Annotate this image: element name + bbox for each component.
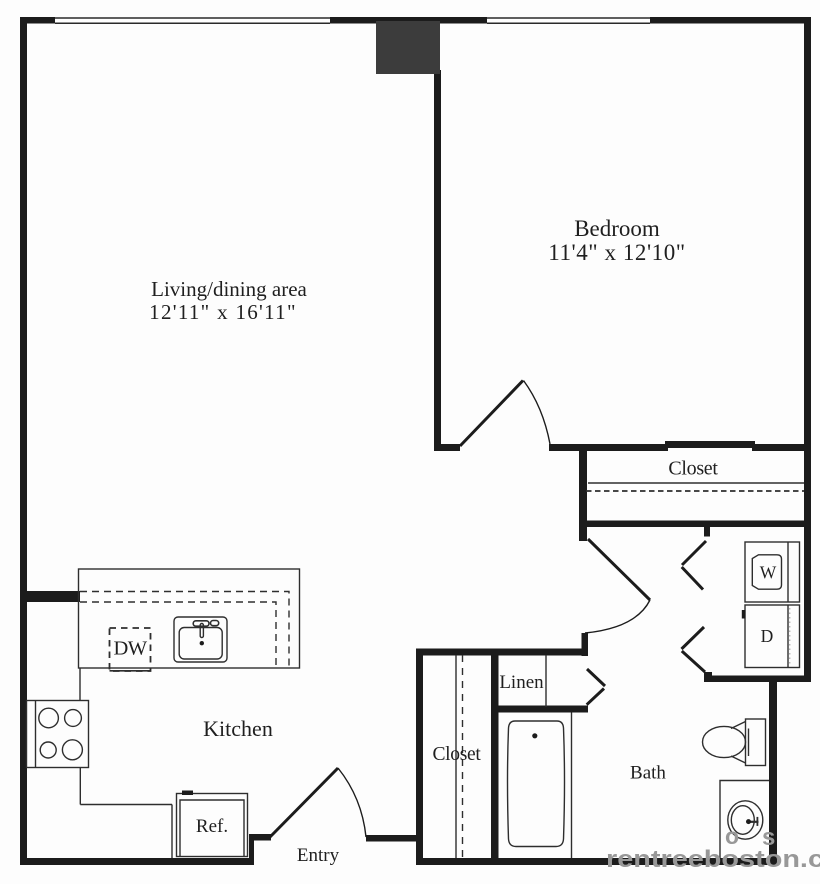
svg-text:Closet: Closet: [668, 458, 718, 480]
svg-text:D: D: [761, 626, 774, 646]
svg-text:12'11" x 16'11": 12'11" x 16'11": [149, 300, 297, 324]
svg-text:Bedroom: Bedroom: [574, 216, 660, 241]
svg-text:Kitchen: Kitchen: [203, 716, 273, 741]
svg-text:W: W: [760, 562, 777, 582]
svg-text:Living/dining area: Living/dining area: [151, 277, 307, 301]
svg-text:Linen: Linen: [499, 672, 544, 693]
svg-text:11'4" x 12'10": 11'4" x 12'10": [548, 240, 685, 265]
svg-text:rentreeboston.c: rentreeboston.c: [606, 846, 820, 873]
svg-text:s: s: [762, 824, 775, 851]
svg-text:o: o: [725, 823, 739, 849]
svg-text:Ref.: Ref.: [196, 816, 228, 837]
svg-text:Closet: Closet: [432, 744, 481, 765]
svg-text:Bath: Bath: [630, 763, 666, 784]
svg-text:Entry: Entry: [297, 845, 340, 866]
svg-text:DW: DW: [114, 638, 148, 660]
